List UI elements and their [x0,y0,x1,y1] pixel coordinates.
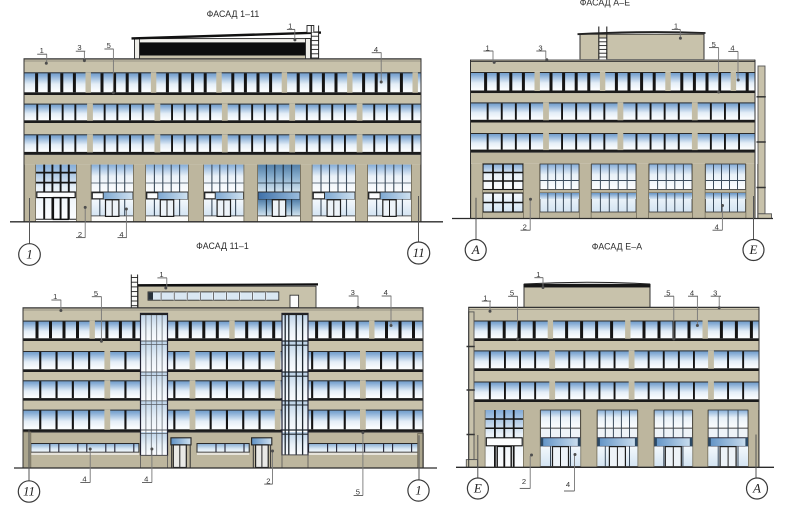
svg-text:ФАСАД А–Е: ФАСАД А–Е [580,0,630,8]
svg-text:1: 1 [26,247,33,262]
svg-text:ФАСАД Е–А: ФАСАД Е–А [592,242,642,252]
svg-text:2: 2 [522,477,526,486]
svg-text:4: 4 [566,480,570,489]
svg-text:1: 1 [415,483,422,498]
svg-text:ФАСАД 1–11: ФАСАД 1–11 [207,9,260,19]
svg-text:11: 11 [23,484,35,499]
svg-text:А: А [471,242,480,257]
svg-text:Е: Е [473,481,482,496]
svg-text:1: 1 [40,46,44,55]
svg-text:ФАСАД 11–1: ФАСАД 11–1 [196,241,249,251]
svg-text:11: 11 [413,245,425,260]
svg-text:3: 3 [77,43,81,52]
svg-text:А: А [752,481,761,496]
svg-text:Е: Е [749,242,758,257]
